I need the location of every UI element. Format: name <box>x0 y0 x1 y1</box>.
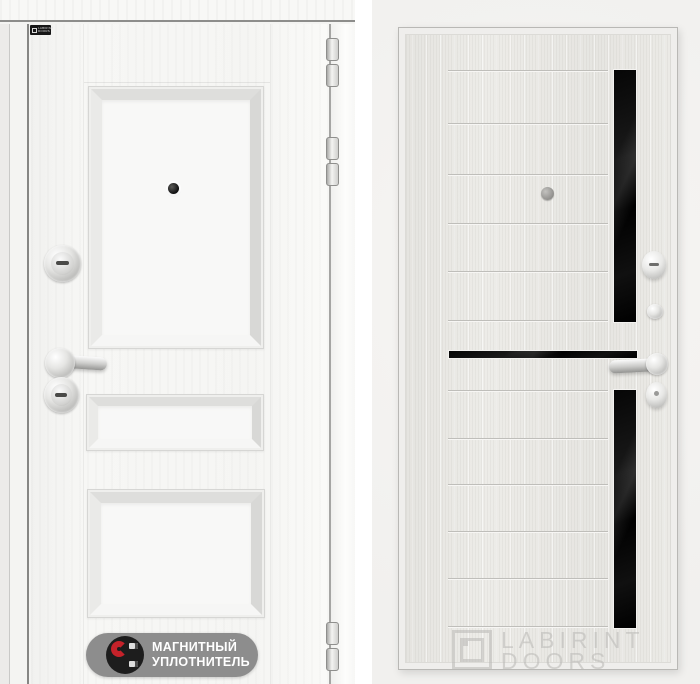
peephole <box>168 183 179 194</box>
frame-edge-highlight <box>331 24 355 684</box>
hinge-barrel <box>326 64 339 87</box>
groove-line <box>448 174 608 176</box>
black-glass-insert-bottom <box>613 389 637 629</box>
panel-bevel <box>91 89 261 346</box>
door-exterior-photo: LABIRINT DOORS МАГНИТНЫЙ УПЛОТНИТЕЛЬ <box>0 0 355 684</box>
door-interior-photo: LABIRINT DOORS <box>372 0 700 684</box>
magnet-icon <box>106 636 144 674</box>
cylinder-lock-bottom <box>44 377 79 413</box>
labyrinth-logo-icon <box>32 28 37 33</box>
cylinder-lock-top <box>44 245 81 282</box>
groove-line <box>448 484 608 486</box>
labyrinth-logo-icon <box>452 630 492 670</box>
watermark-label: LABIRINT DOORS <box>501 630 645 672</box>
peephole <box>541 187 554 200</box>
groove-line <box>448 438 608 440</box>
groove-line <box>448 578 608 580</box>
black-glass-insert-top <box>613 69 637 323</box>
hinge <box>326 137 339 189</box>
brand-plate: LABIRINT DOORS <box>30 25 51 35</box>
raised-panel-middle <box>86 394 264 451</box>
keyhole-slot <box>56 261 69 265</box>
groove-line <box>448 223 608 225</box>
door-frame-header <box>0 0 355 22</box>
panel-bevel <box>90 492 262 615</box>
stile-seam <box>83 24 84 684</box>
wall-strip <box>0 24 10 684</box>
rail-seam <box>84 82 270 83</box>
hinge <box>326 38 339 90</box>
handle-rosette <box>646 353 668 375</box>
hinge-barrel <box>326 648 339 671</box>
groove-line <box>448 70 608 72</box>
magnetic-seal-badge: МАГНИТНЫЙ УПЛОТНИТЕЛЬ <box>86 633 258 677</box>
hinge-barrel <box>326 137 339 160</box>
handle-rosette <box>45 348 75 378</box>
brand-watermark: LABIRINT DOORS <box>452 630 645 672</box>
lock-knob <box>646 382 667 408</box>
groove-line <box>448 123 608 125</box>
groove-line <box>448 320 608 322</box>
door-frame-jamb <box>11 24 29 684</box>
thumbturn-knob <box>642 251 666 279</box>
seal-badge-label: МАГНИТНЫЙ УПЛОТНИТЕЛЬ <box>152 640 250 670</box>
raised-panel-bottom <box>87 489 265 618</box>
hinge-barrel <box>326 622 339 645</box>
stile-seam <box>270 24 271 684</box>
door-leaf-interior <box>398 27 678 670</box>
hinge-barrel <box>326 163 339 186</box>
hinge-barrel <box>326 38 339 61</box>
groove-line <box>448 390 608 392</box>
panel-bevel <box>89 397 261 448</box>
keyhole-slot <box>55 393 67 397</box>
brand-plate-label: LABIRINT DOORS <box>38 27 53 33</box>
black-glass-insert-horizontal <box>448 350 638 359</box>
cylinder-knob <box>647 304 663 319</box>
groove-line <box>448 531 608 533</box>
raised-panel-top <box>88 86 264 349</box>
hinge <box>326 622 339 674</box>
groove-line <box>448 271 608 273</box>
